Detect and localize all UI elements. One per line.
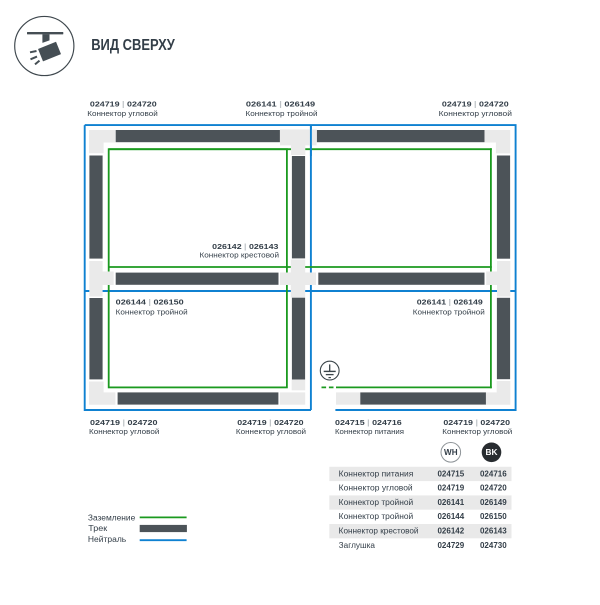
svg-text:Коннектор питания: Коннектор питания xyxy=(335,427,404,436)
svg-text:024730: 024730 xyxy=(480,541,507,550)
svg-text:024720: 024720 xyxy=(480,484,507,493)
svg-text:026141 | 026149: 026141 | 026149 xyxy=(246,99,315,108)
svg-text:024715: 024715 xyxy=(437,469,464,478)
svg-text:Трек: Трек xyxy=(88,524,107,533)
svg-text:024715 | 024716: 024715 | 024716 xyxy=(335,418,402,427)
svg-text:024719 | 024720: 024719 | 024720 xyxy=(442,99,509,108)
svg-text:ВИД СВЕРХУ: ВИД СВЕРХУ xyxy=(91,37,175,54)
svg-text:024719 | 024720: 024719 | 024720 xyxy=(237,418,303,427)
svg-text:026149: 026149 xyxy=(480,498,507,507)
svg-text:Коннектор угловой: Коннектор угловой xyxy=(89,427,159,436)
svg-text:026144: 026144 xyxy=(437,512,464,521)
svg-text:WH: WH xyxy=(444,448,458,457)
svg-text:026144 | 026150: 026144 | 026150 xyxy=(116,298,184,307)
svg-text:Коннектор тройной: Коннектор тройной xyxy=(246,109,318,118)
svg-text:026142: 026142 xyxy=(437,527,464,536)
svg-text:Коннектор тройной: Коннектор тройной xyxy=(339,498,414,507)
svg-text:Коннектор тройной: Коннектор тройной xyxy=(339,512,414,521)
svg-text:024716: 024716 xyxy=(480,469,507,478)
svg-text:Коннектор крестовой: Коннектор крестовой xyxy=(339,527,419,536)
svg-text:Нейтраль: Нейтраль xyxy=(88,535,126,544)
svg-text:Коннектор угловой: Коннектор угловой xyxy=(439,109,512,118)
svg-text:026141: 026141 xyxy=(437,498,464,507)
svg-text:Коннектор крестовой: Коннектор крестовой xyxy=(200,250,280,259)
svg-text:026143: 026143 xyxy=(480,527,507,536)
svg-text:024719: 024719 xyxy=(437,484,464,493)
svg-text:024719 | 024720: 024719 | 024720 xyxy=(90,99,157,108)
svg-text:Коннектор питания: Коннектор питания xyxy=(339,469,414,478)
svg-text:Коннектор угловой: Коннектор угловой xyxy=(236,427,306,436)
svg-text:024729: 024729 xyxy=(437,541,464,550)
svg-text:024719 | 024720: 024719 | 024720 xyxy=(443,418,510,427)
svg-text:Коннектор угловой: Коннектор угловой xyxy=(87,109,158,118)
svg-text:Коннектор угловой: Коннектор угловой xyxy=(339,484,413,493)
svg-text:026150: 026150 xyxy=(480,512,507,521)
svg-text:BK: BK xyxy=(486,448,498,457)
svg-text:Заглушка: Заглушка xyxy=(339,541,376,550)
svg-text:Заземление: Заземление xyxy=(88,513,136,522)
svg-text:Коннектор тройной: Коннектор тройной xyxy=(413,307,485,316)
svg-text:026141 | 026149: 026141 | 026149 xyxy=(417,298,483,307)
svg-text:Коннектор тройной: Коннектор тройной xyxy=(116,307,188,316)
svg-text:Коннектор угловой: Коннектор угловой xyxy=(442,427,512,436)
svg-text:024719 | 024720: 024719 | 024720 xyxy=(90,418,158,427)
